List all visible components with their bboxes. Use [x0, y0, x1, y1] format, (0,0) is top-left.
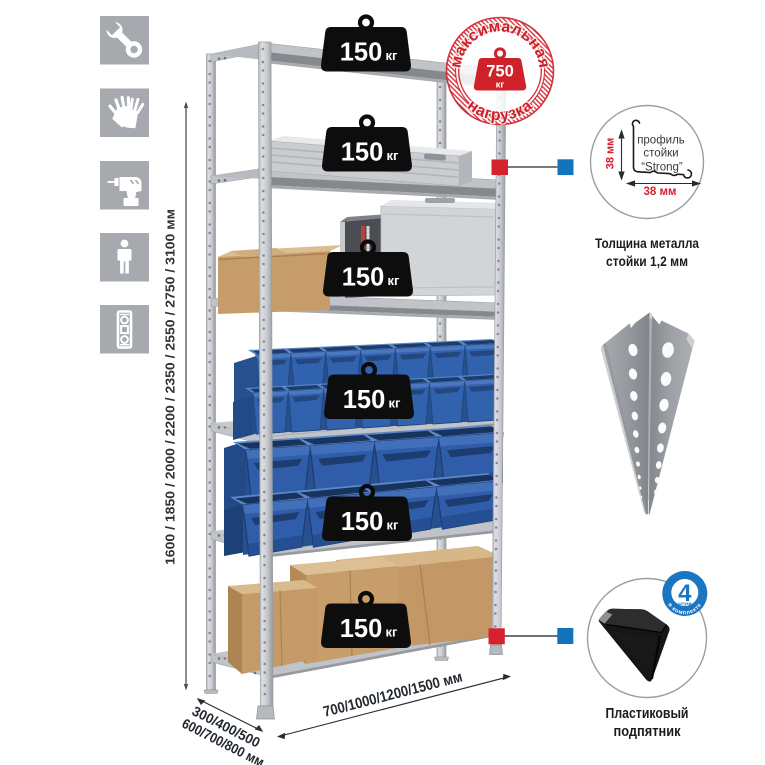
- svg-text:700/1000/1200/1500 мм: 700/1000/1200/1500 мм: [322, 669, 465, 721]
- svg-text:кг: кг: [387, 518, 400, 533]
- svg-text:150: 150: [341, 139, 384, 167]
- svg-text:стойки 1,2 мм: стойки 1,2 мм: [606, 253, 688, 269]
- svg-text:38 мм: 38 мм: [605, 138, 617, 170]
- svg-text:“Strong”: “Strong”: [641, 162, 683, 174]
- svg-text:38 мм: 38 мм: [643, 186, 676, 198]
- svg-text:кг: кг: [386, 48, 399, 63]
- svg-text:кг: кг: [388, 273, 401, 288]
- svg-text:кг: кг: [387, 148, 400, 163]
- svg-text:кг: кг: [386, 625, 399, 640]
- svg-text:1600 / 1850 / 2000 / 2200 / 23: 1600 / 1850 / 2000 / 2200 / 2350 / 2550 …: [163, 209, 178, 565]
- svg-text:штуки: штуки: [678, 601, 692, 606]
- svg-text:150: 150: [342, 264, 385, 292]
- svg-text:Пластиковый: Пластиковый: [606, 705, 689, 722]
- svg-text:стойки: стойки: [643, 148, 678, 160]
- svg-text:профиль: профиль: [637, 135, 685, 147]
- svg-text:150: 150: [340, 39, 383, 67]
- svg-text:150: 150: [343, 386, 386, 414]
- svg-text:подпятник: подпятник: [614, 723, 681, 740]
- svg-text:150: 150: [340, 615, 383, 643]
- svg-text:кг: кг: [389, 396, 402, 411]
- svg-text:150: 150: [341, 508, 384, 536]
- svg-text:кг: кг: [496, 80, 505, 91]
- svg-text:Толщина металла: Толщина металла: [595, 235, 699, 251]
- svg-text:750: 750: [486, 63, 514, 81]
